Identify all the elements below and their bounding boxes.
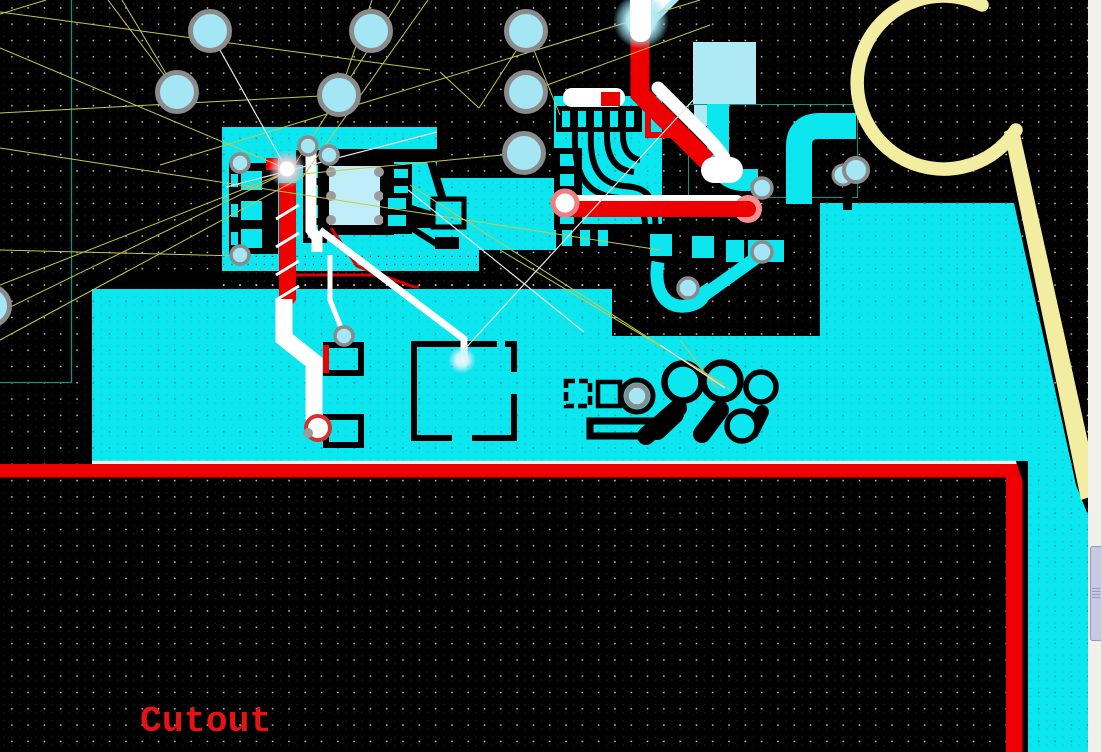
svg-text:Cutout: Cutout xyxy=(140,701,271,742)
